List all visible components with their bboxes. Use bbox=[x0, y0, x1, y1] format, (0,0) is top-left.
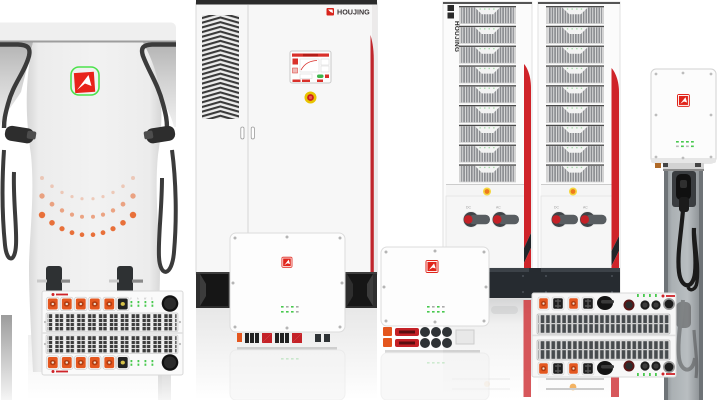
svg-text:AC: AC bbox=[583, 206, 588, 210]
svg-text:DC: DC bbox=[466, 206, 471, 210]
svg-text:HOUJING: HOUJING bbox=[337, 7, 370, 16]
svg-text:HOUJING: HOUJING bbox=[453, 21, 460, 52]
svg-text:DC: DC bbox=[554, 206, 559, 210]
svg-text:AC: AC bbox=[496, 206, 501, 210]
